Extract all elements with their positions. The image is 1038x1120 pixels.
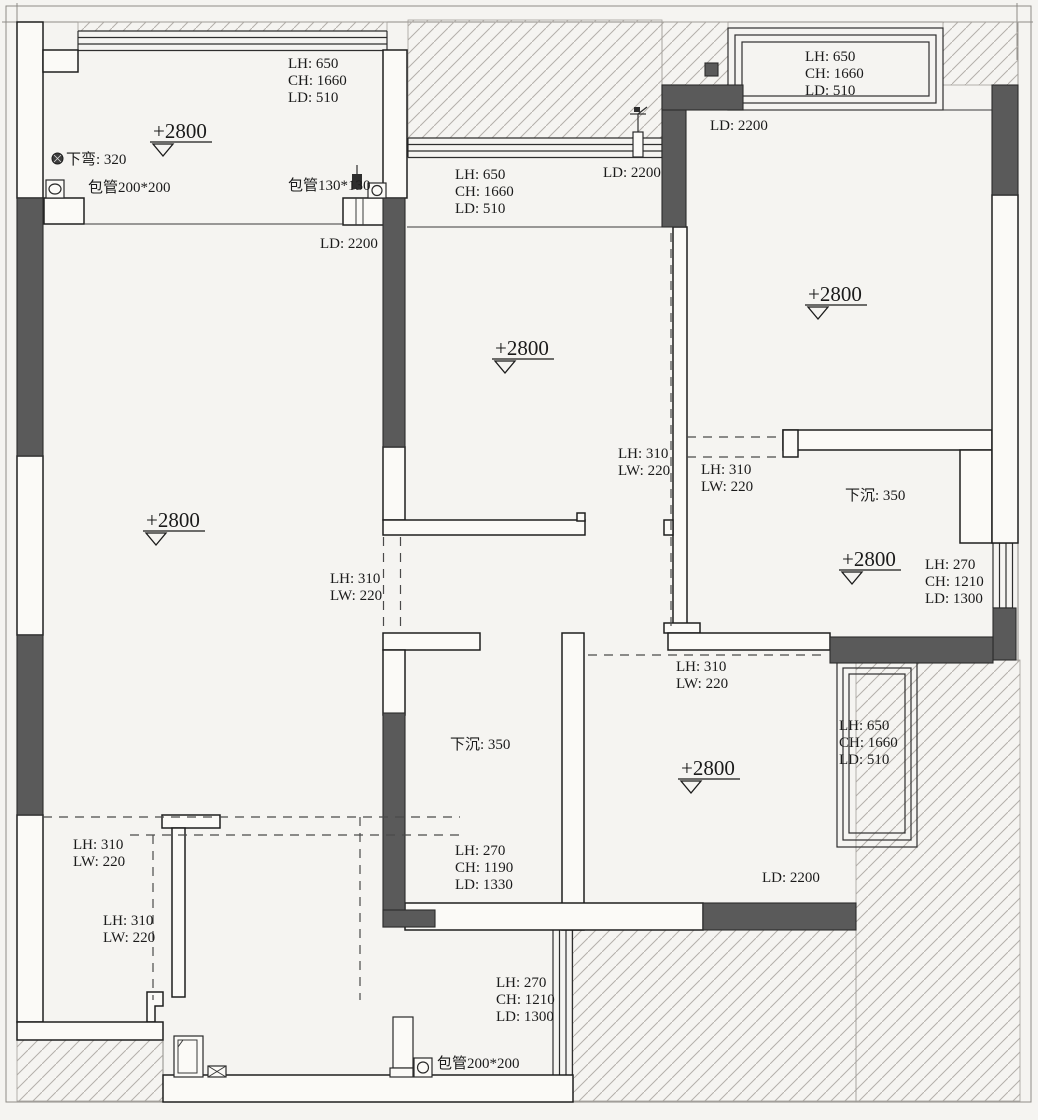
label-down-bend: 下弯: 320 — [66, 151, 126, 168]
label-window-bottom-right: LH: 650 CH: 1660 LD: 510 — [839, 718, 898, 768]
level-value: +2800 — [842, 547, 896, 571]
label-line: LH: 650 — [455, 167, 505, 183]
label-line: LH: 310 — [618, 446, 668, 462]
label-line: LD: 1330 — [455, 877, 513, 893]
label-line: LW: 220 — [618, 463, 670, 479]
label-line: LH: 310 — [103, 913, 153, 929]
label-line: LW: 220 — [676, 676, 728, 692]
label-line: CH: 1210 — [496, 992, 555, 1008]
label-beam-bath-top: LH: 310 LW: 220 — [73, 837, 125, 870]
label-line: LH: 310 — [676, 659, 726, 675]
label-line: LH: 650 — [288, 56, 338, 72]
level-value: +2800 — [808, 282, 862, 306]
shower-tray-icon — [174, 1036, 203, 1077]
label-window-top-right: LH: 650 CH: 1660 LD: 510 — [805, 49, 864, 99]
label-sunken-middle: 下沉: 350 — [450, 736, 510, 753]
label-sunken-right: 下沉: 350 — [845, 487, 905, 504]
label-line: LH: 310 — [73, 837, 123, 853]
label-line: LD: 510 — [805, 83, 855, 99]
label-line: LD: 510 — [839, 752, 889, 768]
label-line: LH: 270 — [925, 557, 975, 573]
label-line: CH: 1660 — [839, 735, 898, 751]
down-bend-icon — [52, 153, 63, 164]
level-value: +2800 — [153, 119, 207, 143]
label-curtain-bottom-right: LD: 2200 — [762, 870, 820, 886]
label-line: LD: 1300 — [925, 591, 983, 607]
label-line: LH: 650 — [805, 49, 855, 65]
label-curtain-middle: LD: 2200 — [603, 165, 661, 181]
label-line: CH: 1660 — [455, 184, 514, 200]
pipe-duct-icon — [390, 1017, 413, 1077]
label-window-middle: LH: 650 CH: 1660 LD: 510 — [455, 167, 514, 217]
label-line: LW: 220 — [330, 588, 382, 604]
label-curtain-top-right: LD: 2200 — [710, 118, 768, 134]
label-beam-hall-top: LH: 310 LW: 220 — [701, 462, 753, 495]
label-beam-bath-mid: LH: 310 LW: 220 — [103, 913, 155, 946]
label-line: LD: 510 — [288, 90, 338, 106]
floor-plan-canvas: +2800 +2800 +2800 +2800 +2800 +2800 LH: … — [0, 0, 1038, 1120]
pipe-box-left-icon — [46, 180, 64, 198]
label-line: LH: 310 — [701, 462, 751, 478]
label-line: LH: 650 — [839, 718, 889, 734]
label-wrap-pipe-mid: 包管130*130 — [288, 177, 371, 194]
label-beam-kitchen-right: LH: 310 LW: 220 — [618, 446, 670, 479]
label-wrap-pipe-left: 包管200*200 — [88, 179, 171, 196]
label-line: LW: 220 — [701, 479, 753, 495]
label-beam-kitchen-door: LH: 310 LW: 220 — [330, 571, 382, 604]
level-value: +2800 — [681, 756, 735, 780]
label-line: LH: 310 — [330, 571, 380, 587]
level-value: +2800 — [495, 336, 549, 360]
label-line: CH: 1660 — [288, 73, 347, 89]
label-door-bottom: LH: 270 CH: 1210 LD: 1300 — [496, 975, 555, 1025]
label-curtain-top-left: LD: 2200 — [320, 236, 378, 252]
label-line: CH: 1190 — [455, 860, 513, 876]
label-window-top-left: LH: 650 CH: 1660 LD: 510 — [288, 56, 347, 106]
pipe-box-bottom-icon — [414, 1058, 432, 1077]
label-line: LW: 220 — [103, 930, 155, 946]
label-line: LH: 270 — [455, 843, 505, 859]
floor-drain-icon — [208, 1066, 226, 1077]
label-beam-hall-bottom: LH: 310 LW: 220 — [676, 659, 728, 692]
label-wrap-pipe-bottom: 包管200*200 — [437, 1055, 520, 1072]
floor-plan-drawing: +2800 +2800 +2800 +2800 +2800 +2800 LH: … — [0, 0, 1038, 1120]
label-line: LD: 1300 — [496, 1009, 554, 1025]
label-line: CH: 1210 — [925, 574, 984, 590]
label-line: CH: 1660 — [805, 66, 864, 82]
label-line: LD: 510 — [455, 201, 505, 217]
label-line: LH: 270 — [496, 975, 546, 991]
label-line: LW: 220 — [73, 854, 125, 870]
level-value: +2800 — [146, 508, 200, 532]
label-bath-door: LH: 270 CH: 1190 LD: 1330 — [455, 843, 513, 893]
column-marker — [705, 63, 718, 76]
label-door-right: LH: 270 CH: 1210 LD: 1300 — [925, 557, 984, 607]
